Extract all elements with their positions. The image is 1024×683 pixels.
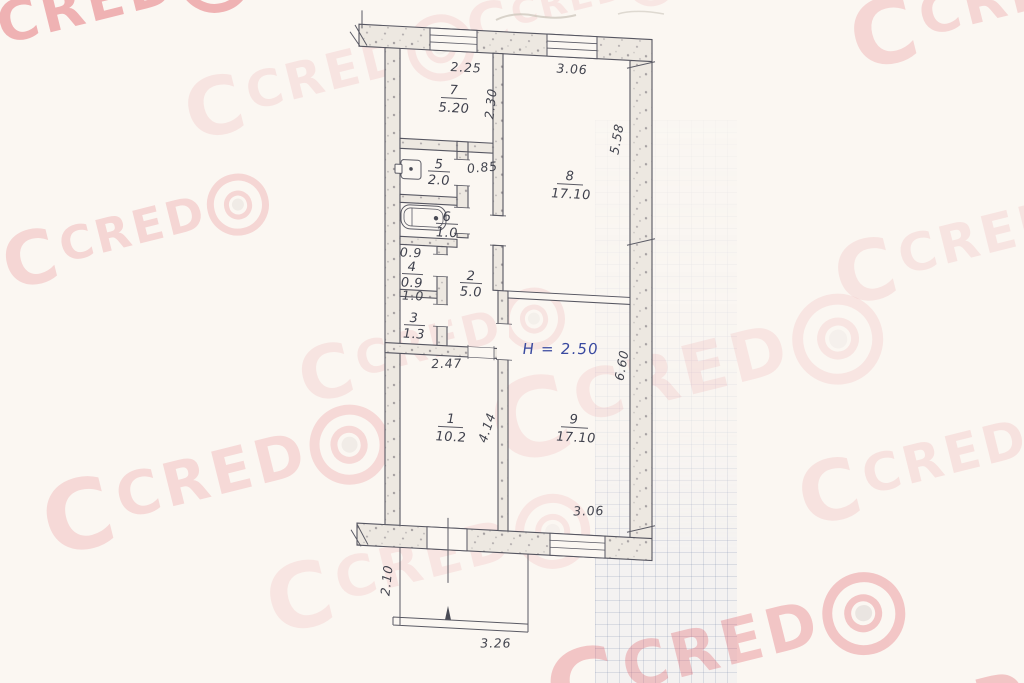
room-5-number: 5 [435,157,444,172]
dim-room8-top-width: 3.06 [556,61,587,78]
balcony-door-opening [427,527,467,551]
room-5-area: 2.0 [428,173,450,189]
room-6-number: 6 [443,210,452,225]
room-3-area: 1.3 [403,327,425,343]
window-symbol-room9 [550,533,605,558]
dim-corridor-width: 0.85 [466,158,499,176]
dim-balcony-depth: 2.10 [377,564,395,597]
dim-right-wall-upper: 5.58 [606,122,626,156]
dim-right-wall-lower: 6.60 [611,348,631,382]
room-9-number: 9 [570,412,579,427]
room-2-area: 5.0 [460,285,482,301]
dim-closet-width: 1.0 [402,287,424,303]
room-4-number: 4 [408,260,417,275]
room-9-area: 17.10 [556,430,596,447]
dim-room9-bottom-width: 3.06 [573,503,605,519]
dim-room1-side: 4.14 [475,410,499,444]
ceiling-height-note: H = 2.50 [522,340,599,358]
dim-wc-width: 0.9 [400,244,422,260]
dimension-arrow [445,606,451,620]
dim-balcony-width: 3.26 [480,635,512,650]
room-1-area: 10.2 [436,429,467,446]
floorplan-drawing: 7 5.20 8 17.10 5 2.0 6 1.0 4 0.9 3 1.3 2… [0,0,1024,683]
room-1-number: 1 [447,412,456,427]
faint-pencil-scribble [496,14,576,20]
window-symbol-room8 [547,34,597,59]
room-3-number: 3 [410,311,419,326]
window-symbol-kitchen [430,28,477,52]
faint-pencil-scribble [618,11,664,14]
partition-wall-8-9 [508,291,630,304]
room-7-area: 5.20 [439,100,470,117]
room-8-area: 17.10 [551,186,591,203]
room-8-number: 8 [566,169,575,184]
dim-kitchen-depth: 2.30 [481,87,499,120]
scanned-floorplan-document: CCRED CCRED CCRED CCRED CCRED CCRED CCRE… [0,0,1024,683]
dim-hallway-width: 2.47 [431,356,463,372]
room-6-area: 1.0 [436,225,458,241]
room-2-number: 2 [467,269,476,284]
room-7-number: 7 [450,83,459,98]
balcony-outline [393,547,528,632]
dim-kitchen-width: 2.25 [450,59,481,76]
